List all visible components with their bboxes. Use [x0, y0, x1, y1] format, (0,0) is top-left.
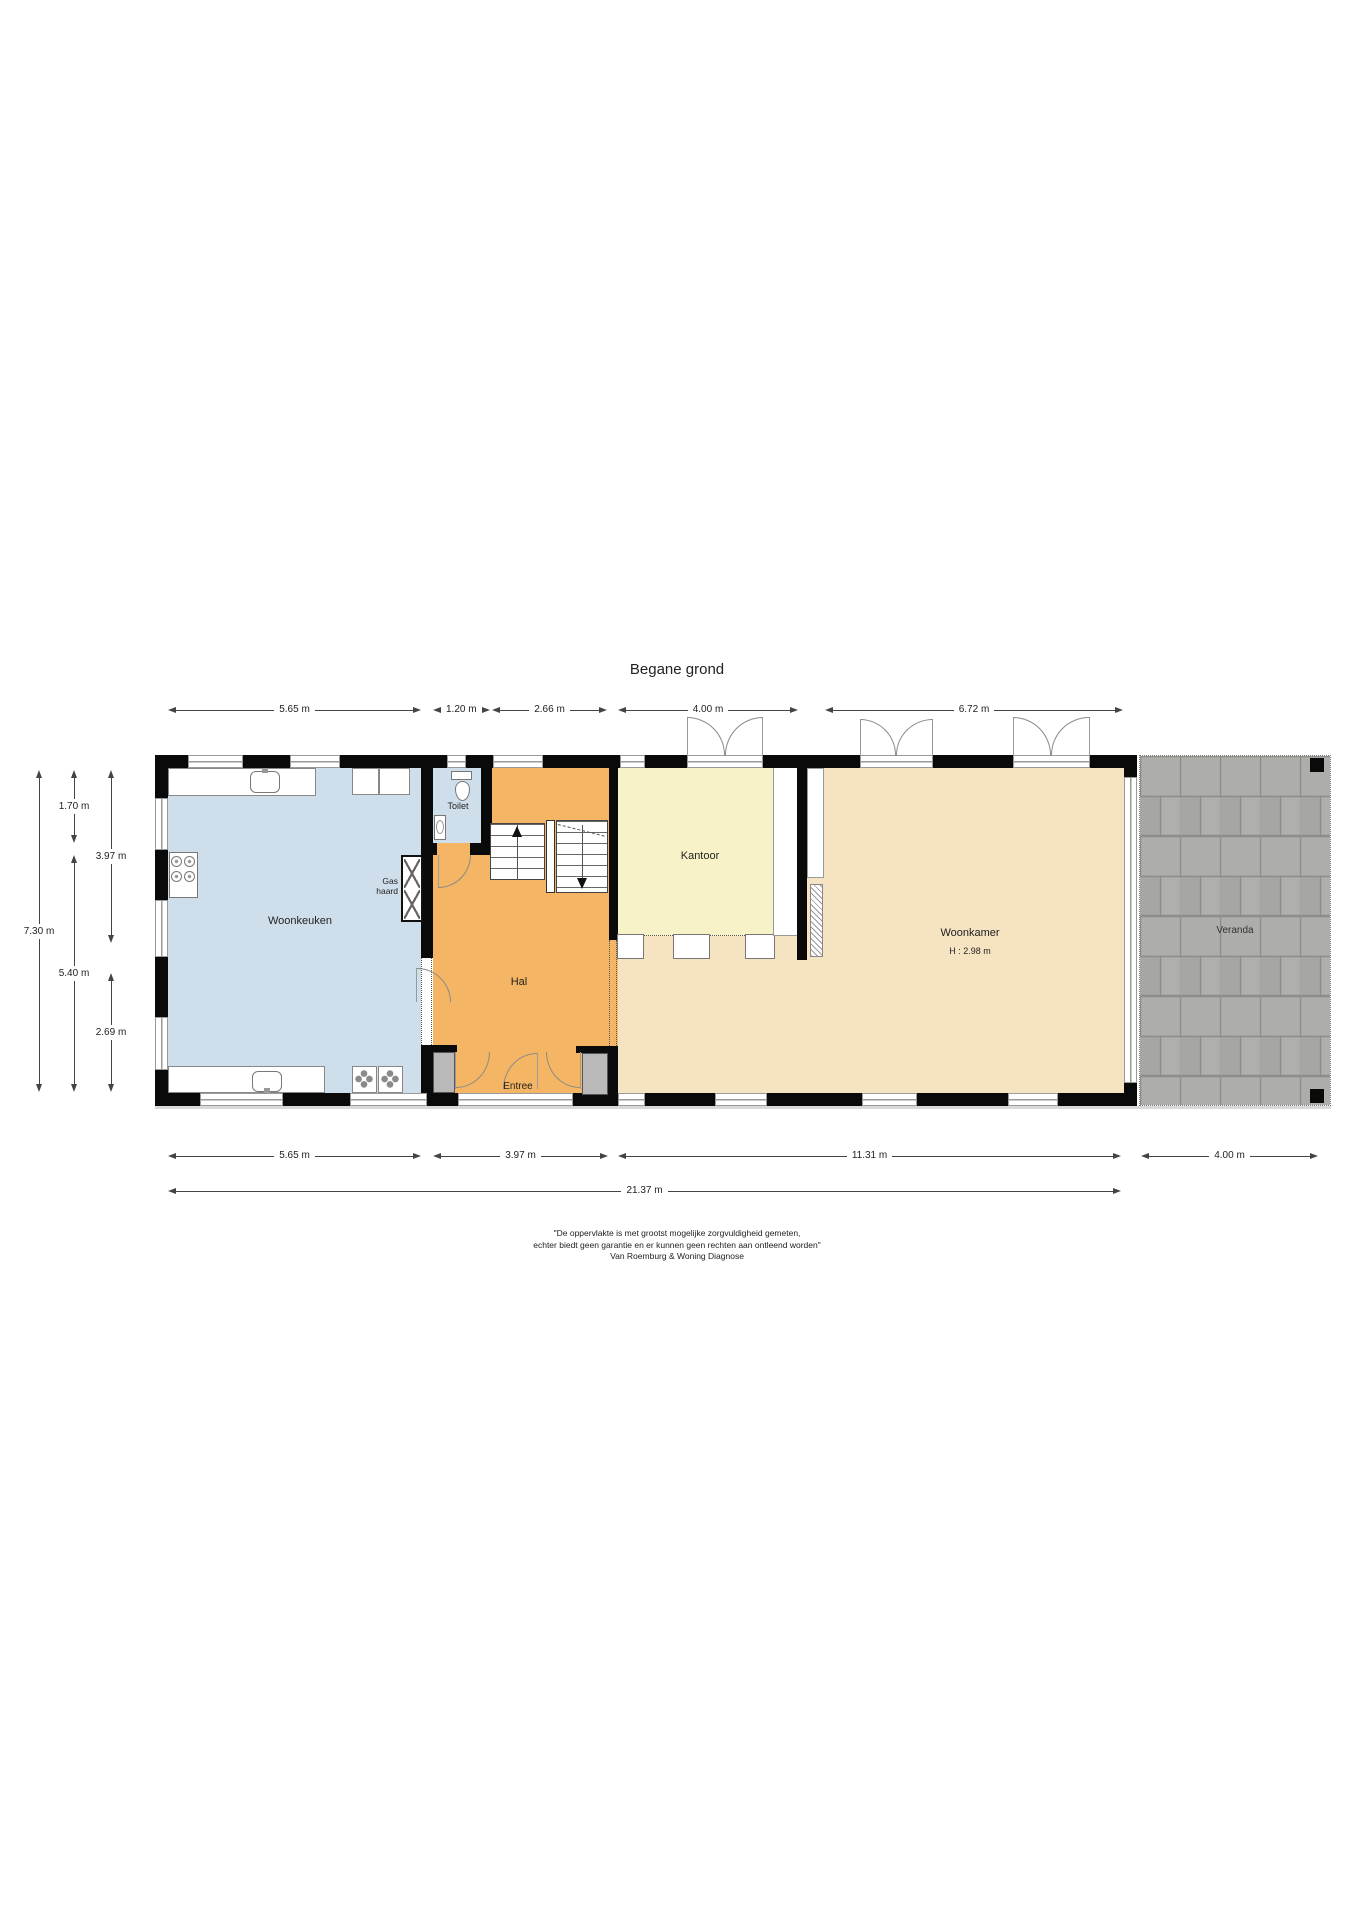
- window: [458, 1093, 573, 1106]
- fireplace-icon: [401, 855, 423, 922]
- window: [200, 1093, 283, 1106]
- arrow-right-icon: [413, 707, 421, 713]
- dimension-top-1: 5.65 m: [168, 704, 421, 716]
- dimension-left-1: 1.70 m: [66, 770, 82, 843]
- wall-toilet-bottom: [470, 843, 492, 855]
- window: [715, 1093, 767, 1106]
- disclaimer: "De oppervlakte is met grootst mogelijke…: [377, 1228, 977, 1263]
- sliding-door: [807, 768, 824, 878]
- dimension-label: 2.69 m: [96, 1025, 127, 1040]
- window: [155, 1017, 168, 1070]
- wall-kantoor-woonkamer: [797, 768, 807, 960]
- door-swing-icon: [687, 717, 725, 755]
- room-label-veranda: Veranda: [1185, 925, 1285, 936]
- dimension-label: 11.31 m: [847, 1150, 892, 1162]
- door-swing-icon: [860, 719, 896, 755]
- dimension-label: 1.20 m: [441, 704, 482, 716]
- window-wall-right: [1124, 777, 1137, 1083]
- room-label-woonkamer: Woonkamer: [900, 927, 1040, 939]
- door-leaf: [580, 1052, 581, 1089]
- floorplan-page: Begane grond 5.65 m 1.20 m 2.66 m 4.00 m…: [0, 0, 1358, 1920]
- faucet-icon: [262, 768, 268, 773]
- entree-closet: [582, 1053, 608, 1095]
- sink-icon: [250, 771, 280, 793]
- dimension-bottom-1: 5.65 m: [168, 1150, 421, 1162]
- faucet-icon: [264, 1088, 270, 1093]
- dimension-label: 3.97 m: [96, 849, 127, 864]
- dimension-top-4: 4.00 m: [618, 704, 798, 716]
- dimension-left-3: 3.97 m: [103, 770, 119, 943]
- wall-entree-right-stub: [608, 1046, 618, 1093]
- kitchen-cabinet: [379, 768, 410, 795]
- room-label-toilet: Toilet: [428, 801, 488, 811]
- page-title: Begane grond: [527, 661, 827, 678]
- room-woonkeuken: [168, 768, 421, 1093]
- wall-entree-left-stub: [421, 1045, 433, 1093]
- fan-icon: [381, 1070, 399, 1088]
- open-wall-line: [431, 958, 432, 1045]
- dimension-left-2: 5.40 m: [66, 855, 82, 1092]
- column-post: [673, 934, 710, 959]
- dimension-label: 4.00 m: [688, 704, 729, 716]
- burner-icon: [184, 856, 195, 867]
- door-leaf: [1089, 717, 1090, 755]
- radiator-icon: [810, 884, 823, 957]
- dimension-bottom-total: 21.37 m: [168, 1185, 1121, 1197]
- burner-icon: [184, 871, 195, 882]
- room-label-hal: Hal: [489, 976, 549, 988]
- window: [1008, 1093, 1058, 1106]
- dimension-label: 21.37 m: [621, 1185, 667, 1197]
- window: [620, 755, 645, 768]
- entree-closet: [433, 1052, 455, 1093]
- door-sill: [687, 755, 763, 768]
- door-swing-icon: [896, 719, 933, 755]
- dimension-label: 7.30 m: [24, 924, 55, 939]
- window: [155, 900, 168, 957]
- dimension-top-5: 6.72 m: [825, 704, 1123, 716]
- burner-icon: [171, 871, 182, 882]
- dimension-label: 3.97 m: [500, 1150, 541, 1162]
- door-swing-icon: [1051, 717, 1089, 755]
- dimension-label: 5.65 m: [274, 704, 315, 716]
- arrow-left-icon: [168, 707, 176, 713]
- fireplace-flue-icon: [404, 890, 420, 919]
- column-post: [617, 934, 644, 959]
- label-gas-haard: Gas haard: [362, 876, 398, 896]
- toilet-tank-icon: [451, 771, 472, 780]
- room-label-entree: Entree: [488, 1081, 548, 1092]
- dimension-label: 6.72 m: [954, 704, 995, 716]
- window: [290, 755, 340, 768]
- dimension-bottom-4: 4.00 m: [1141, 1150, 1318, 1162]
- dimension-label: 5.65 m: [274, 1150, 315, 1162]
- dimension-left-total: 7.30 m: [31, 770, 47, 1092]
- door-sill: [860, 755, 933, 768]
- veranda-post: [1310, 758, 1324, 772]
- room-label-woonkamer-height: H : 2.98 m: [900, 946, 1040, 956]
- window: [350, 1093, 427, 1106]
- door-sill: [1013, 755, 1090, 768]
- window: [862, 1093, 917, 1106]
- room-label-kantoor: Kantoor: [650, 850, 750, 862]
- room-label-woonkeuken: Woonkeuken: [230, 915, 370, 927]
- wall-toilet-bottom: [421, 843, 437, 855]
- window: [155, 798, 168, 850]
- veranda-post: [1310, 1089, 1324, 1103]
- ground-line: [155, 1106, 1331, 1109]
- dimension-bottom-2: 3.97 m: [433, 1150, 608, 1162]
- wall-hal-kantoor: [609, 768, 618, 940]
- window: [618, 1093, 645, 1106]
- kitchen-counter: [168, 1066, 325, 1093]
- dimension-label: 2.66 m: [529, 704, 570, 716]
- disclaimer-line: Van Roemburg & Woning Diagnose: [377, 1251, 977, 1263]
- fireplace-flue-icon: [404, 859, 420, 888]
- dimension-label: 4.00 m: [1209, 1150, 1250, 1162]
- kantoor-closet: [773, 768, 797, 936]
- kitchen-counter: [168, 768, 316, 796]
- door-swing-icon: [1013, 717, 1051, 755]
- wall-bottom: [155, 1093, 1137, 1106]
- disclaimer-line: echter biedt geen garantie en er kunnen …: [377, 1240, 977, 1252]
- column-post: [745, 934, 775, 959]
- dimension-top-2: 1.20 m: [433, 704, 483, 716]
- kitchen-cabinet: [352, 768, 379, 795]
- dimension-top-3: 2.66 m: [492, 704, 607, 716]
- window: [493, 755, 543, 768]
- window: [447, 755, 466, 768]
- dimension-bottom-3: 11.31 m: [618, 1150, 1121, 1162]
- stair-down-arrow-icon: [577, 878, 587, 889]
- room-woonkamer-ext: [618, 936, 807, 1093]
- burner-icon: [171, 856, 182, 867]
- dimension-label: 5.40 m: [59, 966, 90, 981]
- disclaimer-line: "De oppervlakte is met grootst mogelijke…: [377, 1228, 977, 1240]
- open-wall-line: [421, 958, 422, 1045]
- door-swing-icon: [725, 717, 763, 755]
- open-wall-line: [609, 940, 610, 1046]
- dimension-label: 1.70 m: [59, 799, 90, 814]
- washbasin-bowl-icon: [436, 820, 444, 834]
- fan-icon: [355, 1070, 373, 1088]
- window: [188, 755, 243, 768]
- stair-centerline: [582, 825, 583, 880]
- dimension-left-4: 2.69 m: [103, 973, 119, 1092]
- stair-rail: [546, 820, 555, 893]
- stair-up-arrow-icon: [512, 826, 522, 837]
